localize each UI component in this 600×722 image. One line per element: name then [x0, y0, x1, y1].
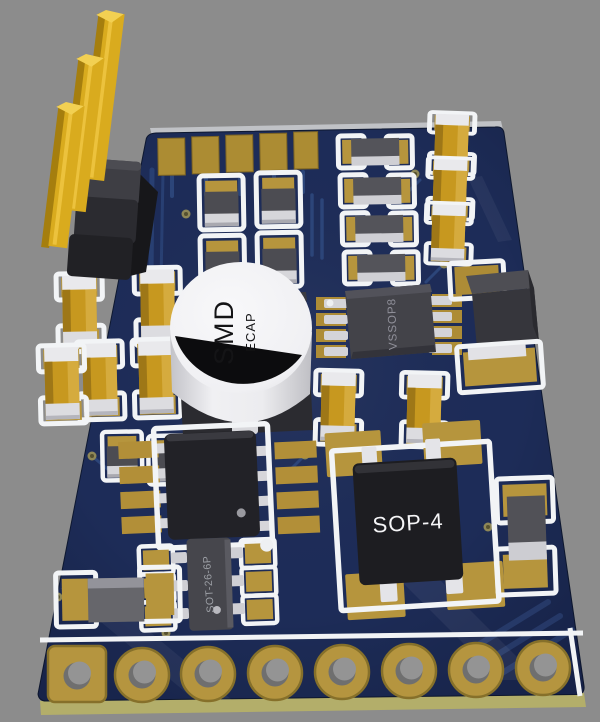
- ecap-label-secondary: ECAP: [243, 312, 258, 351]
- square-pad-pin1: [48, 646, 106, 702]
- ecap-label-primary: SMD: [209, 299, 239, 365]
- through-hole-pad: [449, 643, 503, 697]
- sop4-label: SOP-4: [372, 508, 444, 537]
- through-hole-pad: [181, 647, 235, 701]
- through-hole-pad: [248, 646, 302, 700]
- render-canvas: VSSOP8 SMD ECAP: [0, 0, 600, 722]
- silkscreen-dot: [327, 300, 334, 307]
- pcb-3d-render: VSSOP8 SMD ECAP: [0, 0, 600, 722]
- edge-fingers: [158, 132, 319, 176]
- through-hole-pad: [315, 645, 369, 699]
- vssop8-label: VSSOP8: [386, 298, 400, 350]
- through-hole-pad: [516, 641, 570, 695]
- soic8-body: [164, 430, 261, 540]
- through-hole-pad: [382, 644, 436, 698]
- electrolytic-capacitor: SMD ECAP: [170, 262, 313, 436]
- through-hole-pad: [115, 648, 169, 702]
